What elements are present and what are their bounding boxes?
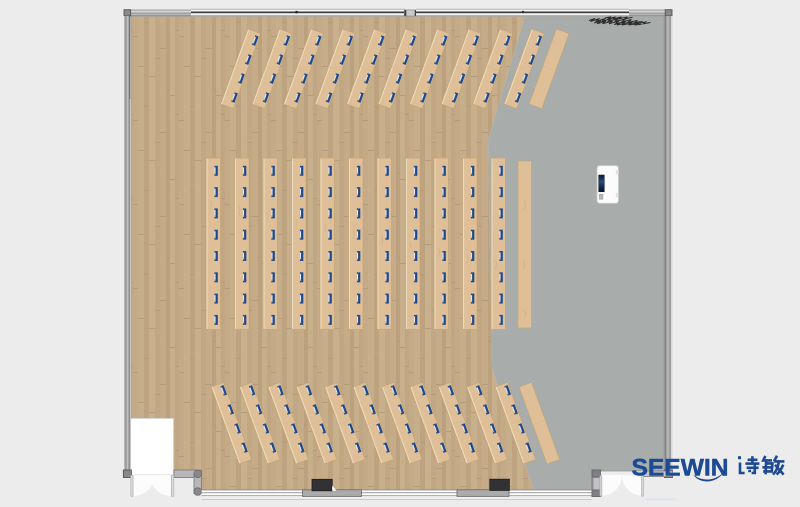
svg-text:SEEWIN: SEEWIN <box>632 455 729 482</box>
